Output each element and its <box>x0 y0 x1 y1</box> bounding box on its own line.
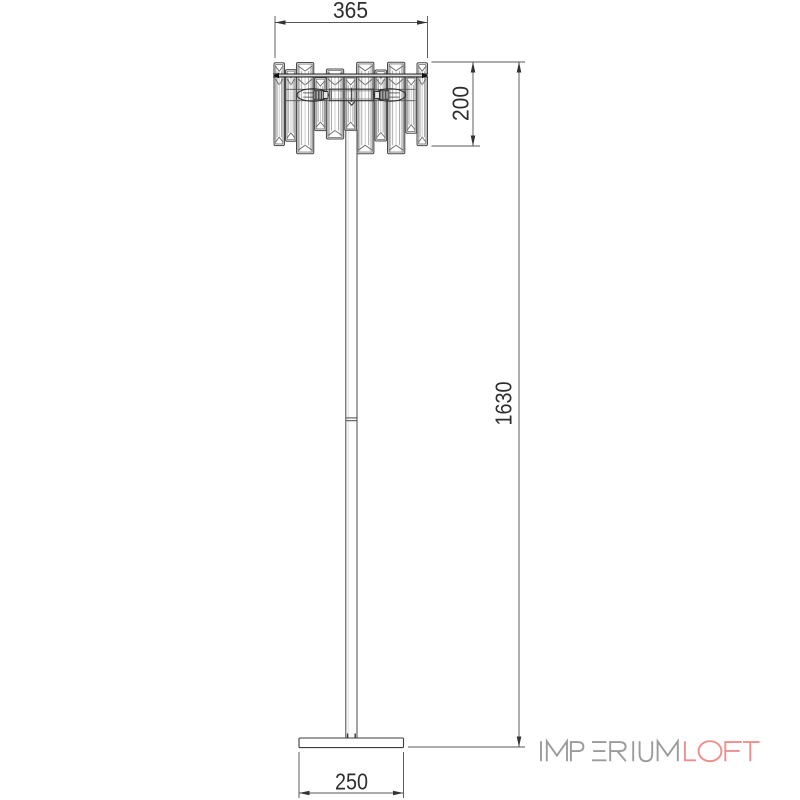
svg-text:1630: 1630 <box>491 382 517 426</box>
svg-text:200: 200 <box>448 86 474 121</box>
svg-text:365: 365 <box>333 0 368 23</box>
svg-text:250: 250 <box>335 768 368 794</box>
